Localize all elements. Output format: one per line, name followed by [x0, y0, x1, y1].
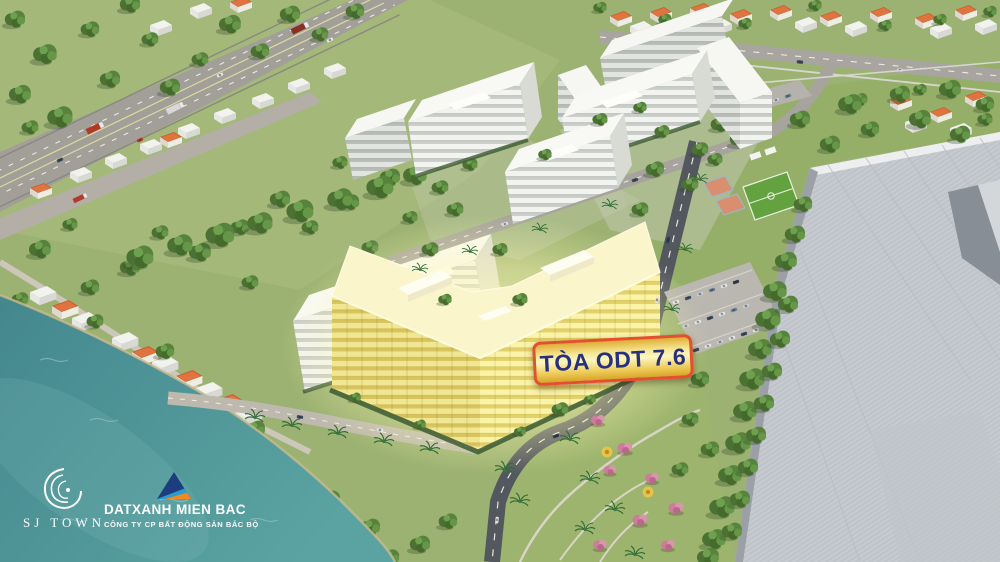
gazebo: [643, 487, 654, 498]
datxanh-logo: DATXANH MIEN BAC CÔNG TY CP BẤT ĐỘNG SẢN…: [104, 472, 244, 529]
building-callout-label: TÒA ODT 7.6: [539, 343, 687, 378]
triangle-logo-icon: [157, 472, 191, 499]
building-callout: TÒA ODT 7.6: [532, 334, 694, 386]
datxanh-name: DATXANH MIEN BAC: [104, 502, 244, 517]
swirl-logo-icon: [42, 466, 86, 512]
aerial-render: TÒA ODT 7.6 SJ TOWN DATXANH MIEN BAC CÔN…: [0, 0, 1000, 562]
datxanh-subtitle: CÔNG TY CP BẤT ĐỘNG SẢN BẮC BỘ: [104, 520, 244, 529]
sj-town-name: SJ TOWN: [16, 515, 112, 531]
sj-town-logo: SJ TOWN: [16, 466, 112, 531]
gazebo: [602, 447, 613, 458]
